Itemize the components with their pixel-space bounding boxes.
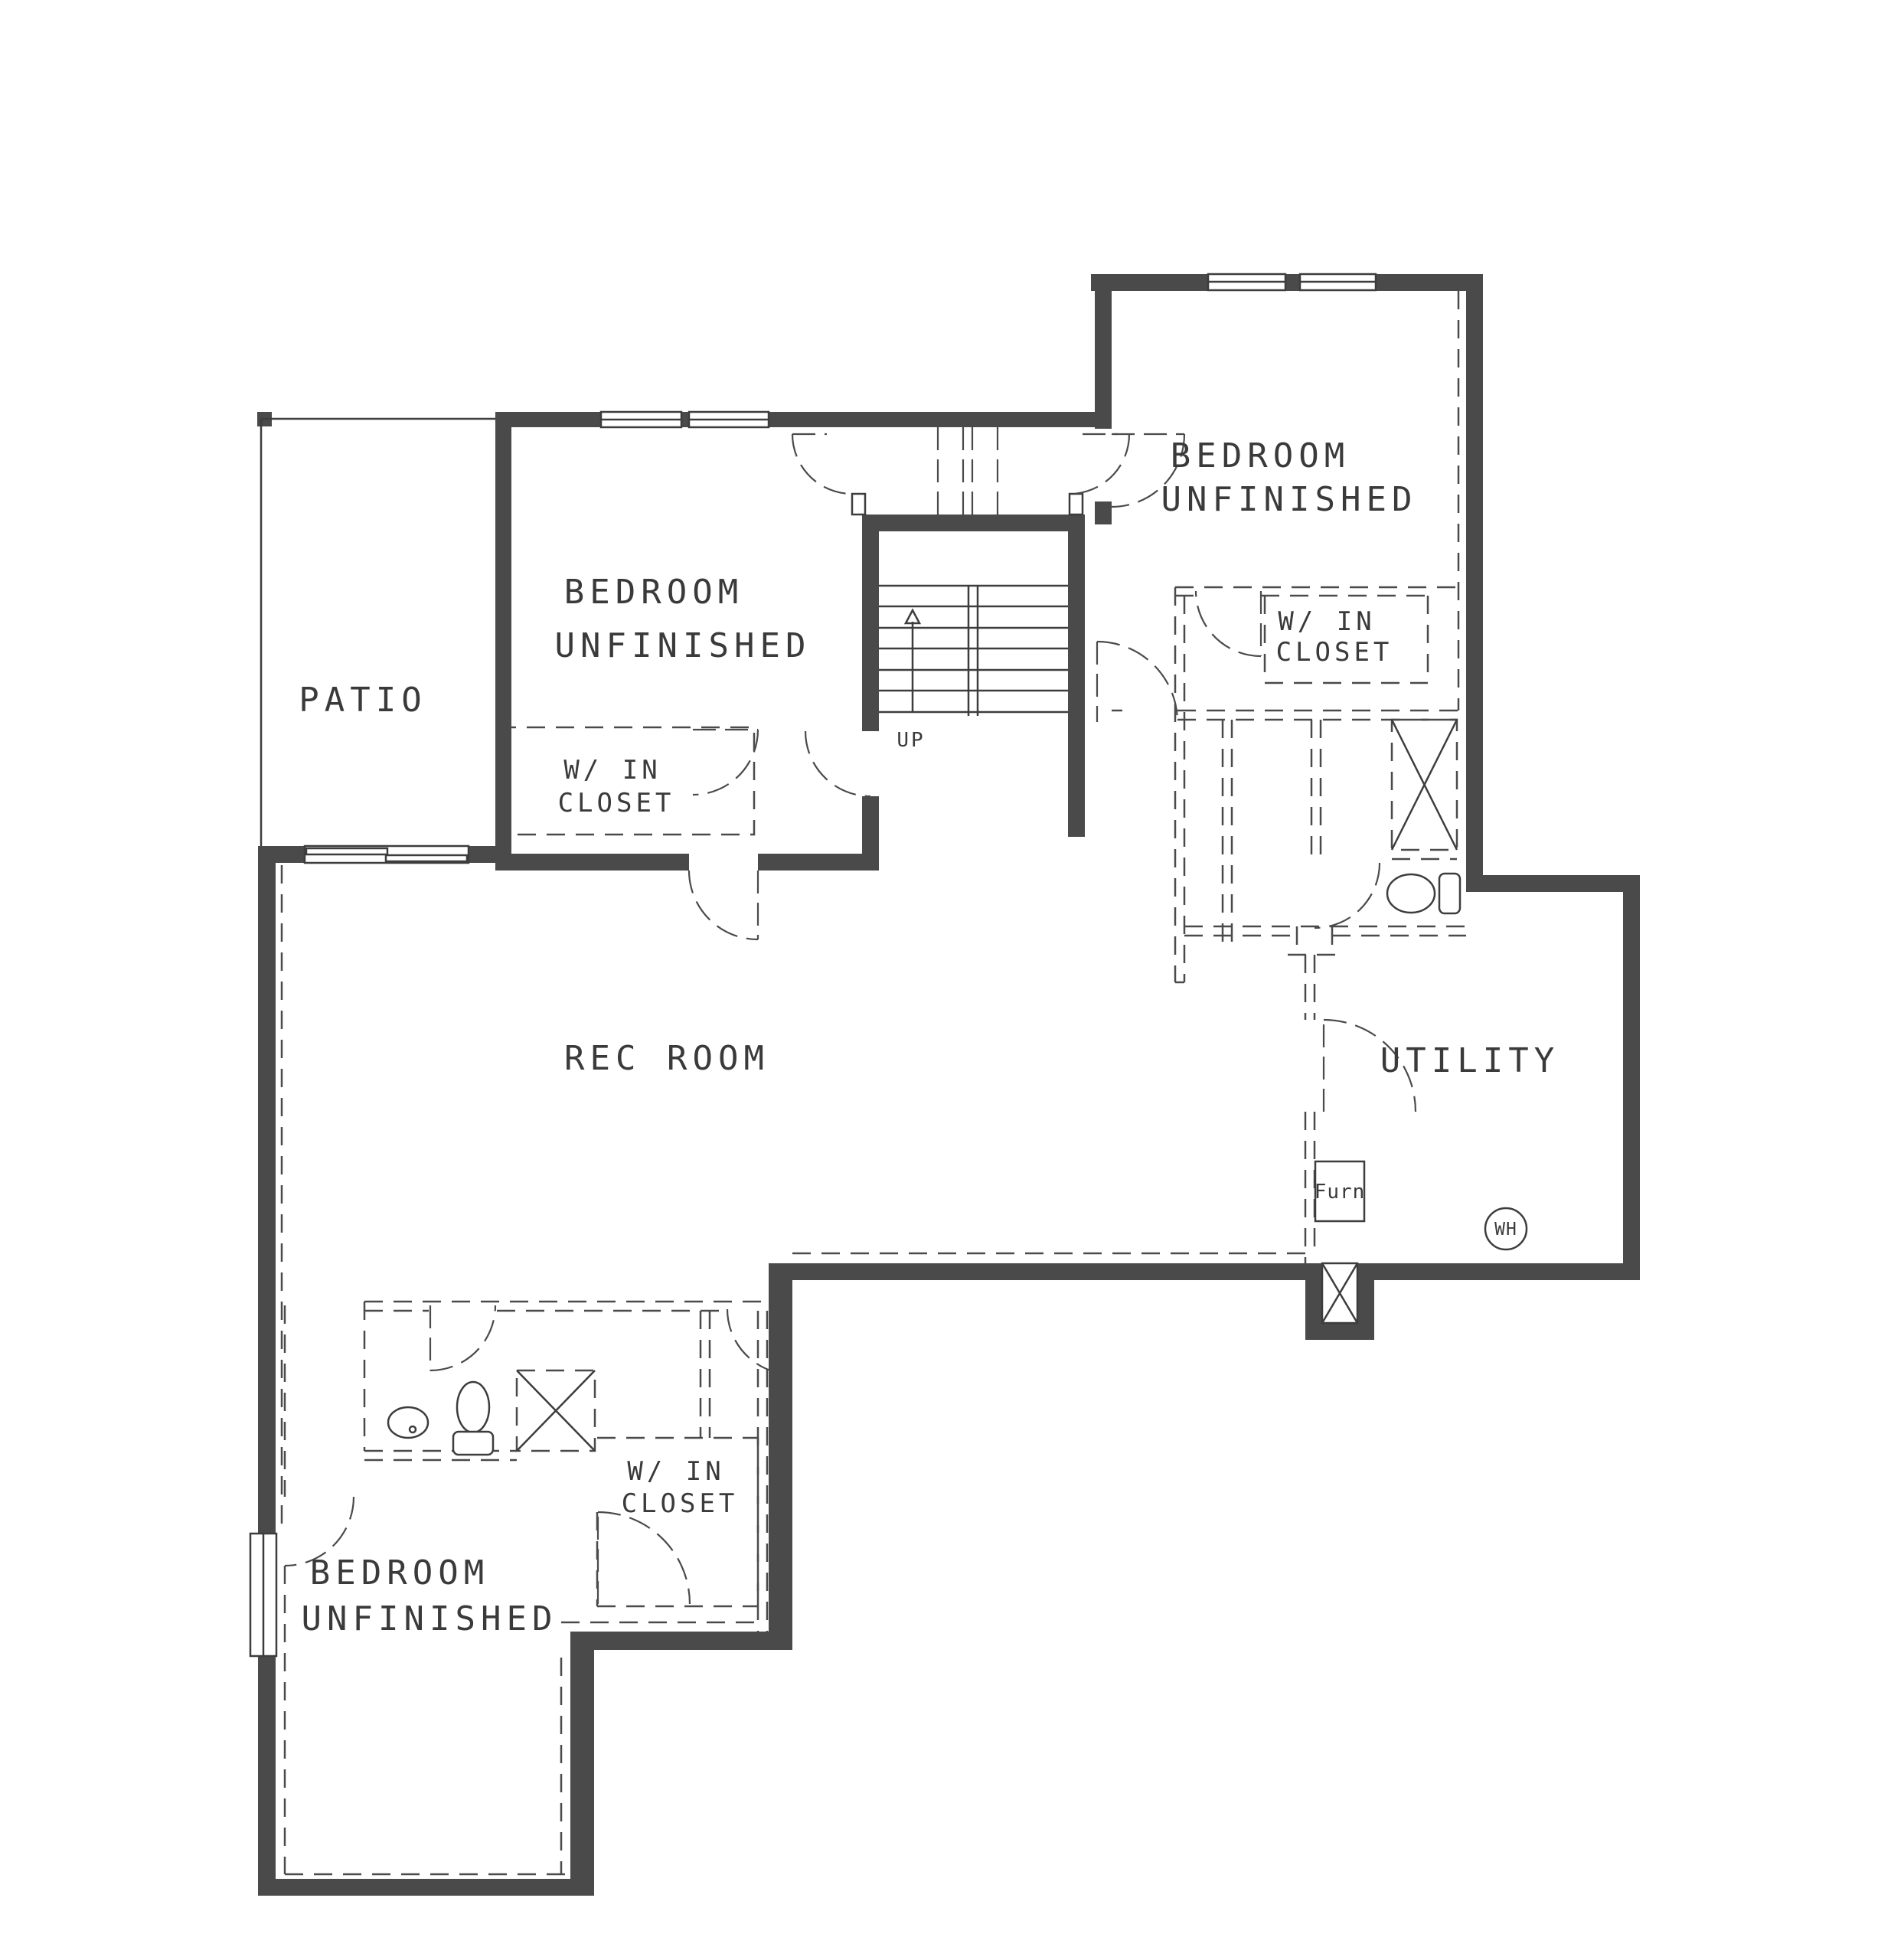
- stair-landing-jambs: [852, 494, 1083, 514]
- water-heater-label: WH: [1494, 1220, 1517, 1240]
- stairs-up-label: UP: [897, 729, 925, 752]
- hall-end-door: [1097, 642, 1177, 722]
- floor-plan-page: UP: [0, 0, 1891, 1960]
- hall-double-door-left: [792, 434, 852, 494]
- patio-sliding-door: [305, 846, 469, 863]
- room-label-utility: UTILITY: [1380, 1041, 1560, 1080]
- patio-outline: [257, 412, 495, 846]
- window-well-x-box: [1322, 1263, 1357, 1323]
- window-ne-2: [1300, 274, 1376, 290]
- staircase: UP: [879, 427, 1068, 752]
- window-ne-1: [1208, 274, 1285, 290]
- room-label-patio: PATIO: [299, 681, 426, 720]
- room-labels: PATIO BEDROOM UNFINISHED W/ IN CLOSET BE…: [299, 436, 1560, 1638]
- upper-floor-dashes: [938, 427, 998, 514]
- bedroom-nw-door: [689, 871, 758, 939]
- furnace-label: Furn: [1315, 1181, 1366, 1204]
- window-south-bedroom: [250, 1534, 276, 1656]
- closet-s-door: [598, 1512, 690, 1604]
- closet-nw-door: [693, 730, 758, 795]
- exterior-walls: [258, 274, 1640, 1896]
- closet-ne-door: [1196, 591, 1261, 656]
- room-label-bedroom-nw-2: UNFINISHED: [555, 626, 812, 665]
- shower-east: [1392, 720, 1457, 859]
- shower-south: [517, 1370, 595, 1451]
- toilet-east: [1387, 874, 1460, 913]
- stair-bottom-door: [805, 731, 870, 796]
- furnace: Furn: [1315, 1161, 1366, 1221]
- room-label-bedroom-s-2: UNFINISHED: [302, 1599, 558, 1638]
- toilet-south: [453, 1382, 493, 1455]
- room-label-closet-nw-1: W/ IN: [563, 755, 661, 786]
- fixtures: Furn WH: [388, 720, 1527, 1455]
- room-label-closet-ne-1: W/ IN: [1278, 606, 1375, 637]
- room-label-closet-ne-2: CLOSET: [1276, 637, 1393, 668]
- room-label-bedroom-ne-1: BEDROOM: [1171, 436, 1350, 475]
- bath-east-door: [1315, 863, 1380, 928]
- room-label-rec-room: REC ROOM: [564, 1039, 769, 1078]
- sink-south: [388, 1407, 428, 1438]
- room-label-bedroom-ne-2: UNFINISHED: [1161, 480, 1418, 519]
- door-swings: [285, 434, 1416, 1604]
- hall-double-door-right: [1070, 434, 1129, 494]
- room-label-closet-s-1: W/ IN: [627, 1456, 724, 1487]
- room-label-closet-s-2: CLOSET: [622, 1488, 739, 1519]
- room-label-bedroom-s-1: BEDROOM: [310, 1553, 489, 1592]
- up-arrow: [906, 610, 919, 712]
- room-label-bedroom-nw-1: BEDROOM: [564, 573, 743, 612]
- window-hall-2: [689, 412, 769, 427]
- floor-plan-drawing: UP: [0, 0, 1891, 1960]
- water-heater: WH: [1485, 1208, 1527, 1249]
- window-hall-1: [601, 412, 681, 427]
- room-label-closet-nw-2: CLOSET: [558, 788, 675, 818]
- bath-south-door: [430, 1305, 495, 1370]
